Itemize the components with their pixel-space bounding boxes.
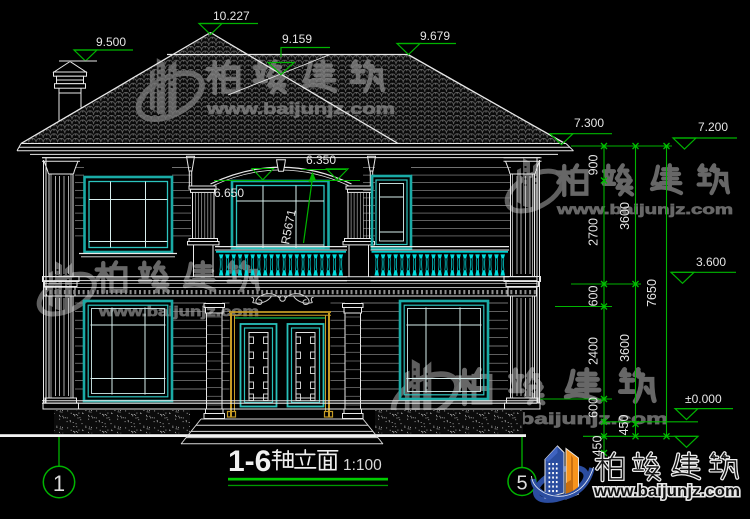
svg-text:7.200: 7.200 [698, 120, 728, 134]
svg-text:7.300: 7.300 [574, 116, 604, 130]
svg-text:3600: 3600 [618, 334, 632, 362]
svg-text:600: 600 [587, 397, 601, 418]
svg-text:1-6: 1-6 [228, 445, 271, 478]
svg-text:5: 5 [516, 473, 527, 495]
svg-text:6.350: 6.350 [306, 153, 336, 167]
svg-text:±0.000: ±0.000 [685, 392, 722, 406]
svg-text:7650: 7650 [645, 279, 659, 307]
svg-text:1: 1 [53, 471, 65, 496]
svg-text:600: 600 [587, 286, 601, 307]
svg-text:1:100: 1:100 [343, 457, 382, 474]
svg-text:2400: 2400 [587, 337, 601, 365]
svg-text:450: 450 [617, 415, 631, 436]
svg-text:9.159: 9.159 [282, 32, 312, 46]
svg-text:6.650: 6.650 [214, 186, 244, 200]
svg-text:2700: 2700 [587, 218, 601, 246]
svg-text:9.679: 9.679 [420, 29, 450, 43]
svg-text:www.baijunjz.com: www.baijunjz.com [206, 101, 395, 118]
svg-text:3.600: 3.600 [696, 255, 726, 269]
svg-text:9.500: 9.500 [96, 35, 126, 49]
svg-text:900: 900 [587, 155, 601, 176]
svg-text:10.227: 10.227 [213, 9, 250, 23]
svg-text:www.baijunjz.com: www.baijunjz.com [555, 202, 733, 217]
svg-text:www.baijunjz.com: www.baijunjz.com [593, 483, 740, 500]
svg-text:3600: 3600 [618, 202, 632, 230]
